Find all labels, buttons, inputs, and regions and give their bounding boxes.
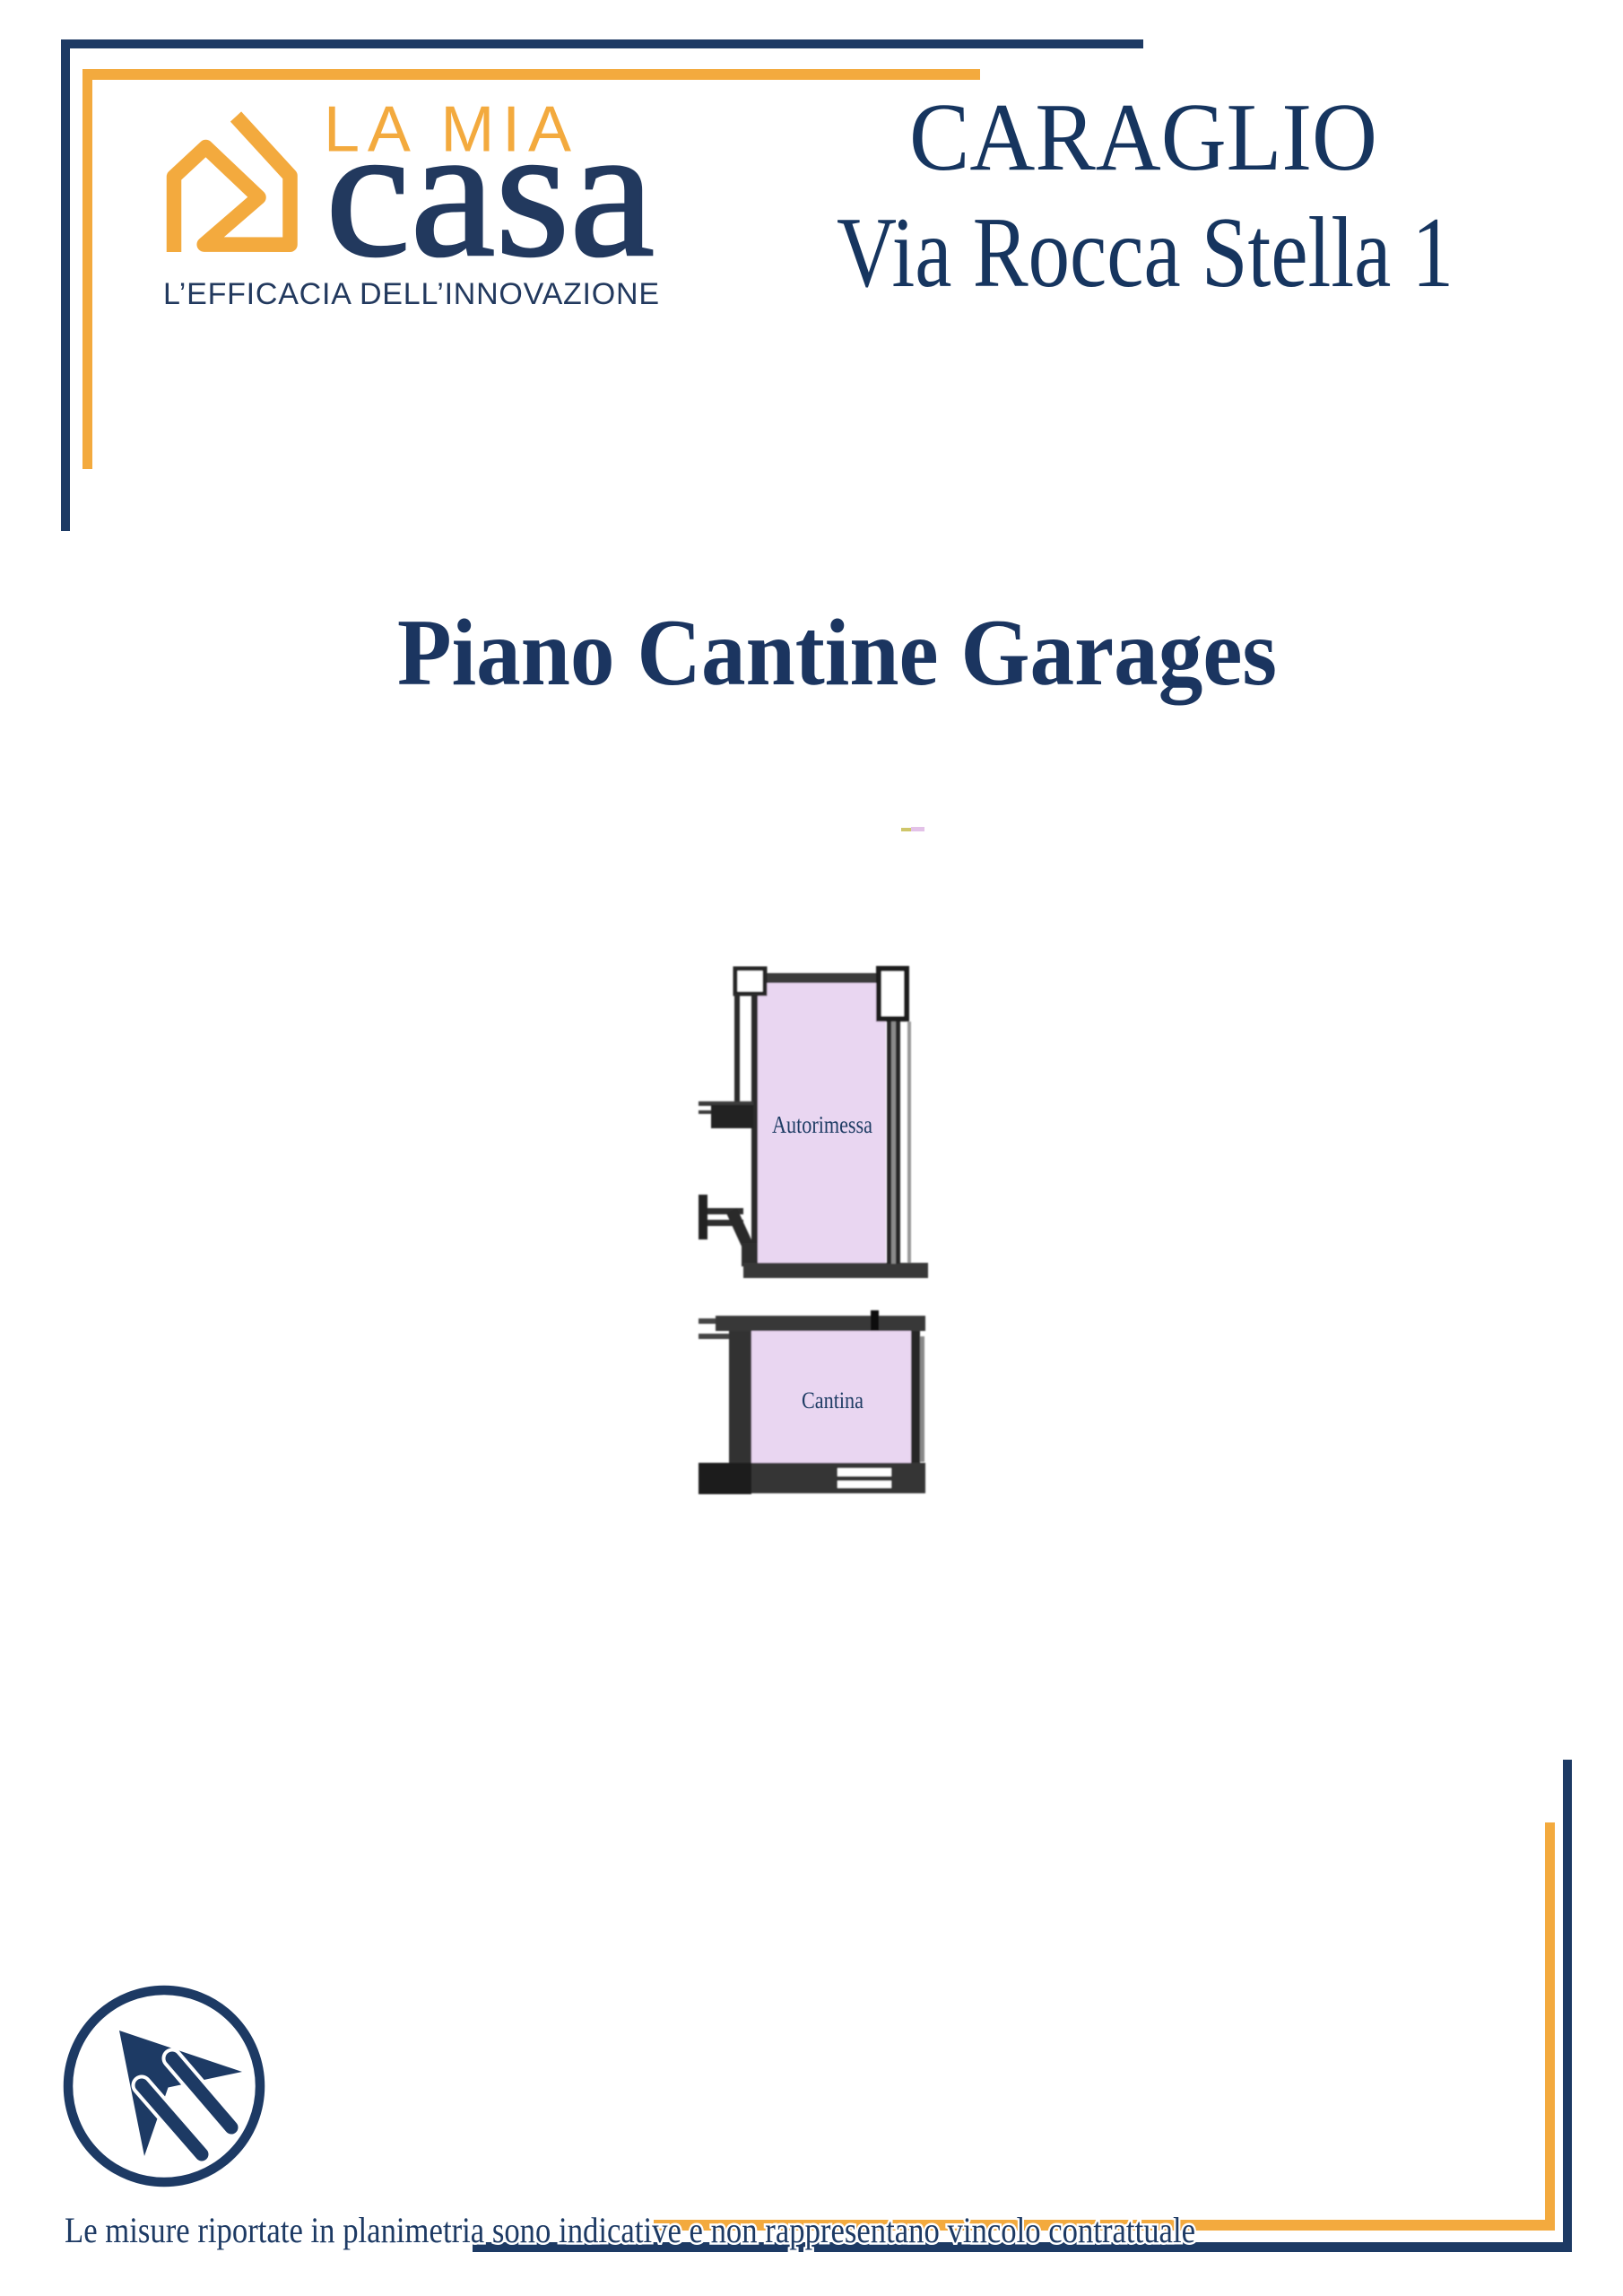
svg-text:Le misure riportate in planime: Le misure riportate in planimetria sono … bbox=[65, 2210, 1195, 2250]
svg-text:Via Rocca Stella 1: Via Rocca Stella 1 bbox=[837, 197, 1454, 309]
svg-text:CARAGLIO: CARAGLIO bbox=[909, 84, 1377, 191]
svg-text:L’EFFICACIA DELL’INNOVAZIONE: L’EFFICACIA DELL’INNOVAZIONE bbox=[163, 277, 659, 311]
svg-text:casa: casa bbox=[325, 88, 655, 296]
svg-text:Autorimessa: Autorimessa bbox=[772, 1111, 872, 1138]
svg-text:Cantina: Cantina bbox=[802, 1387, 864, 1413]
svg-text:Piano Cantine Garages: Piano Cantine Garages bbox=[397, 600, 1277, 705]
